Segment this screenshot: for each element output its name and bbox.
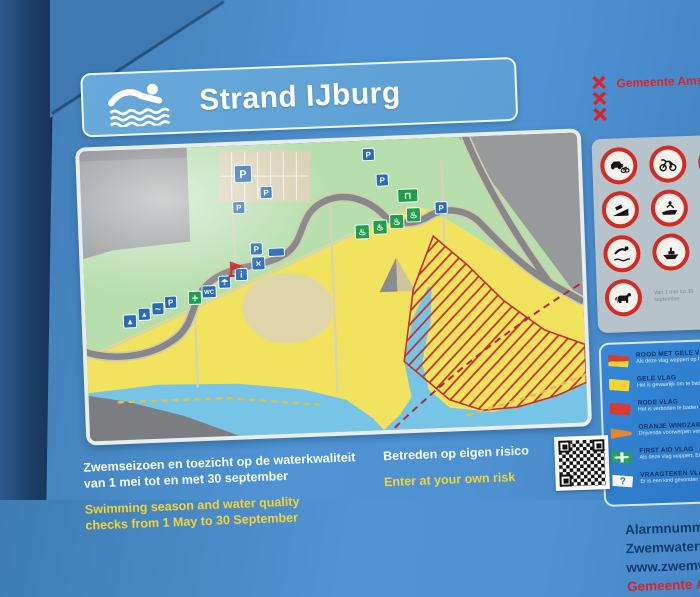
site-map: PPPPPPPPWC☂i×▲▲~+♨♨♨♨⊓ <box>75 128 592 445</box>
canoeing-map-icon: ~ <box>152 303 164 316</box>
flag-legend-windsock: ORANJE WINDZAKDrijvende voorwerpen verbo… <box>610 420 700 441</box>
flag-legend-red: RODE VLAGHet is verboden te baden <box>610 396 700 417</box>
no-boat-launching-sign <box>601 191 639 229</box>
wc-map-icon: WC <box>202 286 216 299</box>
photo-of-beach-sign: { "sign": { "title": "Strand IJburg" }, … <box>0 0 700 500</box>
svg-text:⊓: ⊓ <box>404 191 411 201</box>
no-motorboats-sign <box>652 233 690 271</box>
windsock-flag-icon <box>610 426 631 441</box>
swim-season-notice-en: Swimming season and water qualitychecks … <box>85 490 386 533</box>
flag-legend-question: ?VRAAGTEKEN VLAGEr is een kind gevonden <box>612 468 700 489</box>
pavilion-label-map-icon <box>268 248 284 257</box>
sign-title: Strand IJburg <box>199 76 402 118</box>
prohibition-signs-panel: Van 1 mei tot 30 september <box>591 133 700 333</box>
flag-legend-yellow: GELE VLAGHet is gevaarlijk om te baden <box>609 372 700 393</box>
bbq-map-icon: ♨ <box>406 208 420 223</box>
bbq-map-icon: ♨ <box>355 225 369 240</box>
flag-legend-first-aid: FIRST AID VLAGAls deze vlag wappert, Eer… <box>611 444 700 465</box>
no-motor-vehicles-sign <box>600 147 638 185</box>
no-dogs-sign <box>604 279 642 317</box>
amsterdam-logo: Gemeente Amsterdam <box>591 69 700 123</box>
flag-legend-panel: ROOD MET GELE VLAGAls deze vlag wappert … <box>599 338 700 507</box>
contact-block: Alarmnummer:Zwemwatertelefoon:www.zwemwa… <box>625 513 700 596</box>
svg-text:☂: ☂ <box>221 278 228 287</box>
parking-map-icon: P <box>234 165 252 183</box>
svg-text:♨: ♨ <box>393 217 401 227</box>
no-diving-sign <box>603 235 641 273</box>
question-flag-icon: ? <box>612 474 633 489</box>
bbq-map-icon: ♨ <box>373 220 387 235</box>
svg-text:▲: ▲ <box>126 317 134 326</box>
svg-text:♨: ♨ <box>376 222 384 232</box>
swim-season-notice-nl: Zwemseizoen en toezicht op de waterkwali… <box>83 448 384 491</box>
svg-text:P: P <box>239 169 247 181</box>
svg-text:~: ~ <box>155 304 161 315</box>
svg-text:♨: ♨ <box>358 227 366 237</box>
svg-text:WC: WC <box>204 290 215 296</box>
footer-notices: Zwemseizoen en toezicht op de waterkwali… <box>83 440 605 534</box>
flag-legend-red-yellow: ROOD MET GELE VLAGAls deze vlag wappert … <box>608 348 700 369</box>
parking-map-icon: P <box>164 296 176 308</box>
parking-map-icon: P <box>362 148 374 160</box>
prohibition-note: Van 1 mei tot 30 september <box>654 288 700 304</box>
sign-frame-left-post <box>0 0 54 500</box>
parking-map-icon: P <box>233 201 245 213</box>
swimmer-icon <box>96 79 182 128</box>
no-mopeds-sign <box>649 145 687 183</box>
info-map-icon: i <box>235 268 247 280</box>
svg-text:i: i <box>240 270 243 280</box>
yellow-flag-icon <box>609 378 630 393</box>
sign-header: Strand IJburg <box>80 57 518 138</box>
svg-text:×: × <box>255 259 261 270</box>
parking-map-icon: P <box>376 174 388 186</box>
picnic-map-icon: ⊓ <box>398 189 418 203</box>
amsterdam-crosses-icon <box>591 75 608 123</box>
right-panel: Gemeente Amsterdam Van 1 mei tot 30 sept… <box>589 55 700 597</box>
first-aid-map-icon: + <box>188 291 201 305</box>
windsurfing-map-icon: ▲ <box>138 308 150 320</box>
parking-map-icon: P <box>260 186 272 198</box>
restaurant-map-icon: × <box>252 257 265 271</box>
contact-lines: Alarmnummer:Zwemwatertelefoon:www.zwemwa… <box>625 513 700 577</box>
qr-code <box>554 435 610 491</box>
red-flag-icon <box>610 402 631 417</box>
parking-map-icon: P <box>250 243 262 255</box>
svg-text:♨: ♨ <box>409 210 417 220</box>
shower-map-icon: ☂ <box>219 276 231 288</box>
municipality-name: Gemeente Amsterdam <box>616 72 700 90</box>
svg-text:+: + <box>192 293 199 305</box>
red-yellow-flag-icon <box>608 354 629 369</box>
parking-map-icon: P <box>435 202 447 214</box>
sailing-map-icon: ▲ <box>123 315 136 328</box>
beach-info-sign: Strand IJburg <box>53 28 613 518</box>
first-aid-flag-icon <box>611 450 632 465</box>
bbq-map-icon: ♨ <box>390 214 404 229</box>
map-icons-layer: PPPPPPPPWC☂i×▲▲~+♨♨♨♨⊓ <box>79 133 588 442</box>
svg-text:▲: ▲ <box>141 312 148 319</box>
no-jetski-sign <box>650 189 688 227</box>
